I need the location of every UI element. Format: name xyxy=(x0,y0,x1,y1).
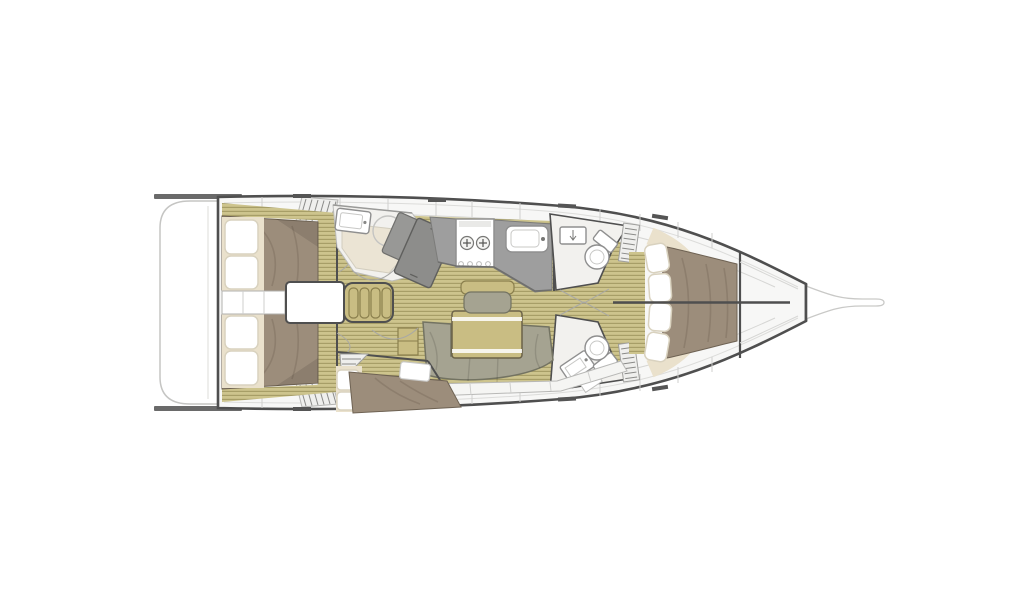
boat-floorplan-diagram xyxy=(0,0,1024,600)
aft-cabin-stbd-floor xyxy=(318,313,337,391)
sofa-seam xyxy=(497,356,498,383)
pillow xyxy=(644,242,671,273)
aft-cabin-starboard xyxy=(222,313,337,402)
saloon-chair xyxy=(464,292,511,313)
pillow xyxy=(225,220,258,254)
pillow xyxy=(648,273,672,302)
berth-cushion xyxy=(399,361,431,381)
saloon-steps xyxy=(398,328,418,355)
galley-sink xyxy=(506,226,548,252)
stove xyxy=(456,219,494,267)
pillow xyxy=(225,316,258,349)
forward-cabin xyxy=(613,236,798,369)
pillow xyxy=(648,302,672,331)
aft-cabin-port-floor xyxy=(318,214,337,292)
center-locker-row xyxy=(222,291,285,314)
table-stripe xyxy=(452,317,522,321)
boat-layout-canvas xyxy=(0,0,1024,600)
aft-head-sink xyxy=(335,208,371,234)
companionway-seat xyxy=(344,283,393,322)
engine-box xyxy=(286,282,344,323)
aft-cabin-port xyxy=(222,203,337,292)
bowsprit xyxy=(806,286,884,319)
fwd-head-port-sink xyxy=(560,227,586,244)
pillow xyxy=(225,351,258,385)
swim-platform-deck xyxy=(160,201,218,404)
pillow xyxy=(225,256,258,289)
pillow xyxy=(644,331,671,362)
table-stripe xyxy=(452,349,522,353)
